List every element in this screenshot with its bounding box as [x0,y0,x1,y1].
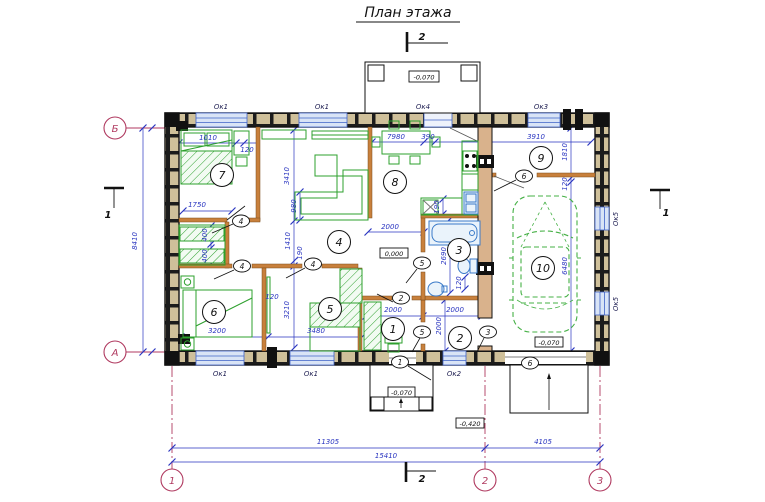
room-7: 7 [219,169,226,182]
dim-3910: 3910 [527,133,545,141]
elevation-porch-bottom: -0,070 [391,389,412,397]
dim-6480: 6480 [561,257,569,275]
dim-3410: 3410 [283,167,291,185]
door-tag-4c: 4 [311,260,316,269]
dim-7980: 7980 [387,133,405,141]
label-ok3: Ок3 [534,103,548,111]
flue-left-bottom [178,334,190,344]
dim-190a: 190 [296,246,304,260]
dim-1750: 1750 [188,201,206,209]
axis-num-3: 3 [597,476,603,487]
cabinet-top-1 [262,130,306,139]
dim-1410: 1410 [284,232,292,250]
room-2: 2 [457,332,464,345]
floor-plan-page: 4 4 4 5 5 2 3 1 6 6 1 2 3 4 5 6 7 8 9 10… [0,0,765,502]
flue-top-right-1 [563,109,571,130]
dim-390: 390 [421,133,435,141]
stove [463,151,477,171]
mirror-room5 [267,277,270,333]
window-ok2-bottom [443,351,466,365]
axis-letter-a: А [111,348,119,359]
bearing-wall [476,127,524,351]
door-tag-6b: 6 [528,359,533,368]
elevation-garage: -0,070 [539,339,560,347]
dim-120a: 120 [240,146,254,154]
room-1: 1 [390,323,397,336]
label-ok5-b: Ок5 [612,296,620,311]
elevation-floor: 0,000 [385,250,404,258]
dim-120-wc: 120 [455,276,463,290]
door-tag-2: 2 [399,294,404,303]
label-ok1-c: Ок1 [213,370,227,378]
room-6: 6 [211,306,218,319]
elevation-porch-top: -0,070 [414,74,435,82]
garage-door-opening [505,352,586,364]
door-tag-5a: 5 [420,259,425,268]
window-ok1-top-mid [299,113,347,127]
label-ok1-b: Ок1 [315,103,329,111]
door-tag-1: 1 [398,358,403,367]
door-tag-5b: 5 [420,328,425,337]
flue-bottom [267,347,277,368]
label-ok5-a: Ок5 [612,211,620,226]
elevation-apron: -0,420 [460,420,481,428]
axis-num-2: 2 [482,476,488,487]
section-1-right: 1 [663,208,670,219]
door-tag-6a: 6 [522,172,527,181]
window-ok1-bottom-left [196,351,244,365]
floor-plan-drawing: 4 4 4 5 5 2 3 1 6 6 1 2 3 4 5 6 7 8 9 10… [0,0,765,502]
door-tag-4b: 4 [240,262,245,271]
room-3: 3 [456,244,463,257]
room-8: 8 [392,176,399,189]
window-ok1-top-left [196,113,247,127]
section-1-left: 1 [105,210,112,221]
window-ok5-right-top [595,207,609,230]
section-2-top: 2 [419,32,426,43]
dim-400a: 400 [201,228,209,242]
window-ok1-bottom-mid [290,351,334,365]
room-10: 10 [536,262,550,275]
kitchen-sink [464,192,478,214]
dim-8410: 8410 [131,232,139,250]
wardrobe-room5 [340,269,362,303]
room-9: 9 [538,152,545,165]
dim-2000-hall: 2000 [381,223,399,231]
drawing-title: План этажа [356,5,460,22]
garage-apron [510,365,588,413]
dim-400b: 400 [201,249,209,263]
washbasin [428,282,447,296]
room-4: 4 [336,236,343,249]
label-ok2: Ок2 [447,370,462,378]
wardrobe-room1 [364,302,381,350]
dim-2000-r1: 2000 [384,306,402,314]
dim-3210: 3210 [283,301,291,319]
dim-4105: 4105 [534,438,552,446]
dim-2690: 2690 [440,247,448,265]
coffee-table [315,155,337,176]
dim-120-wall: 120 [561,177,569,191]
label-ok1-d: Ок1 [304,370,318,378]
axis-letter-b: Б [112,124,119,135]
dim-3200: 3200 [208,327,226,335]
label-ok1-a: Ок1 [214,103,228,111]
axis-num-1: 1 [169,476,175,487]
dim-11305: 11305 [317,438,340,446]
nightstand-1 [181,276,194,288]
dim-3480: 3480 [307,327,325,335]
label-ok4: Ок4 [416,103,430,111]
dim-120m: 120 [265,293,279,301]
cabinet-top-2 [312,131,368,139]
room-5: 5 [327,303,334,316]
dim-190k: 190 [433,200,441,214]
corner-sofa [295,170,368,220]
dim-15410: 15410 [375,452,398,460]
window-ok3-top [528,113,560,127]
window-ok5-right-bottom [595,292,609,315]
dim-2000-r2: 2000 [446,306,464,314]
section-2-bottom: 2 [419,474,426,485]
dim-980: 980 [290,199,298,213]
page-title: План этажа [364,5,451,21]
door-tag-3: 3 [486,328,491,337]
dim-1810: 1810 [561,143,569,161]
flue-top-right-2 [575,109,583,130]
door-tag-4a: 4 [239,217,244,226]
dim-2000-v: 2000 [435,317,443,335]
dim-1010: 1010 [199,134,217,142]
